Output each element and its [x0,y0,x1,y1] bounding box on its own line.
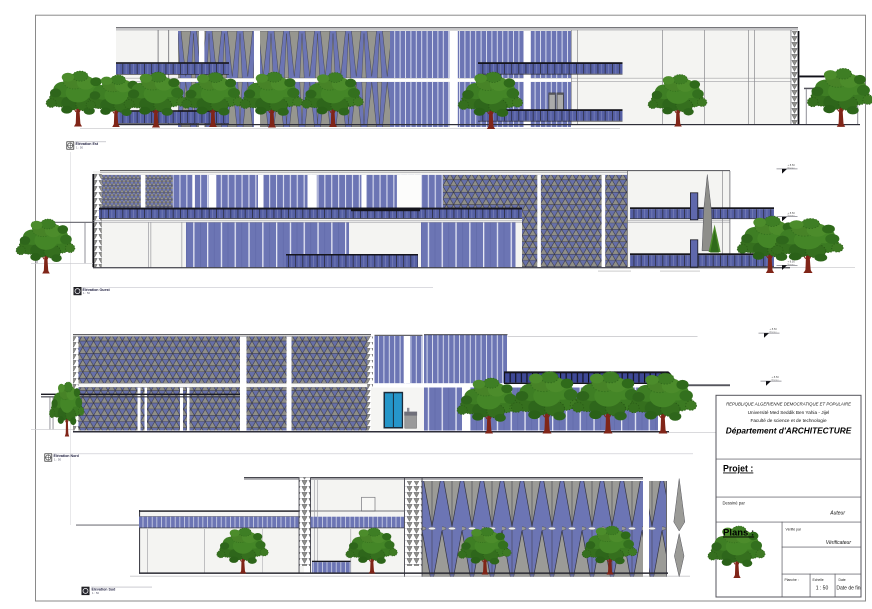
svg-text:Vérifié par: Vérifié par [786,528,802,532]
svg-text:Auteur: Auteur [829,511,845,517]
svg-text:Echelle: Echelle [813,578,824,582]
svg-text:REPUBLIQUE ALGERIENNE DEMOCRAT: REPUBLIQUE ALGERIENNE DEMOCRATIQUE ET PO… [726,402,851,407]
svg-text:Date de fin: Date de fin [836,586,860,592]
svg-text:Projet :: Projet : [723,464,753,474]
svg-text:Planche :: Planche : [785,578,799,582]
svg-text:1 : 50: 1 : 50 [816,586,829,592]
svg-text:1 : 50: 1 : 50 [76,146,83,150]
svg-text:1 : 50: 1 : 50 [54,458,61,462]
svg-text:Dessiné par: Dessiné par [723,501,746,506]
svg-text:1 : 50: 1 : 50 [83,291,90,295]
svg-text:Département d'ARCHITECTURE: Département d'ARCHITECTURE [726,426,852,436]
svg-text:1 : 50: 1 : 50 [92,591,99,595]
svg-text:Plans :: Plans : [723,528,754,539]
svg-text:Vérificateur: Vérificateur [826,540,852,546]
svg-text:Université Med Seddik Ben Yahi: Université Med Seddik Ben Yahia - Jijel [748,410,830,415]
svg-text:Faculté de science et de techn: Faculté de science et de technologie [750,418,826,423]
svg-text:Date: Date [839,578,846,582]
